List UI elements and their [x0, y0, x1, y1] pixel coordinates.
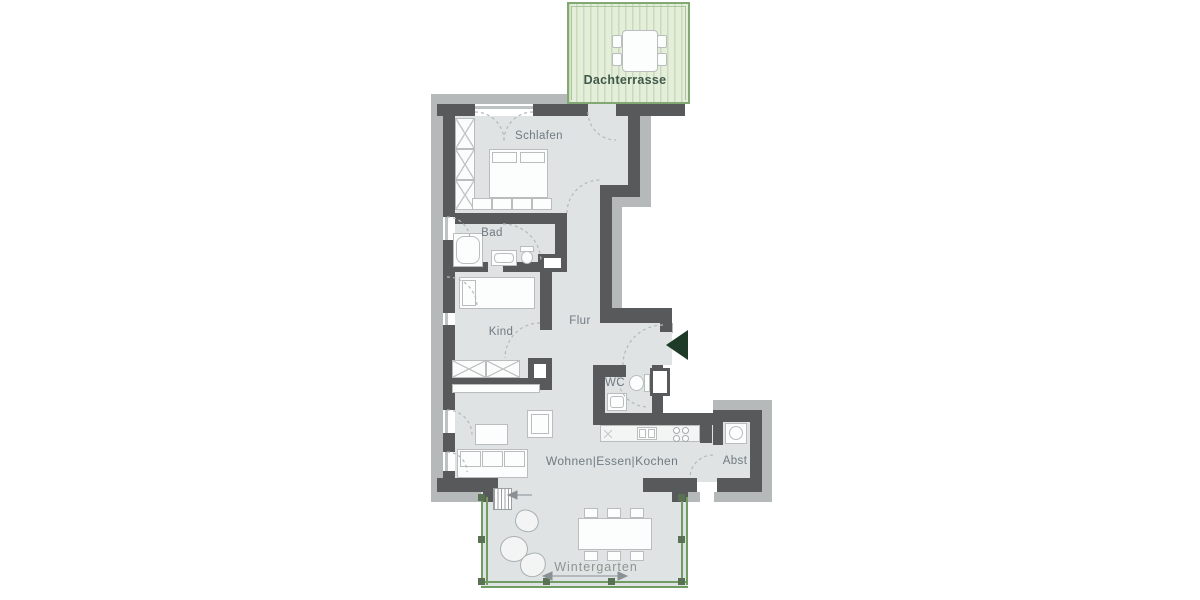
window-swing-arc [447, 410, 472, 435]
room-label-dachterrasse: Dachterrasse [584, 73, 667, 87]
schlafen-door-swing-arc [567, 180, 600, 213]
door-swing-arcs-overlay [0, 0, 1200, 600]
entrance-door-swing-arc [623, 325, 663, 365]
floor-plan: Dachterrasse Schlafen Bad Kind Flur WC W… [0, 0, 1200, 600]
bad-door-swing-arc [503, 224, 541, 262]
room-label-kind: Kind [489, 326, 514, 338]
room-label-abst: Abst [723, 455, 748, 467]
window-swing-arc [447, 217, 470, 240]
terrace-door-swing-arc [588, 112, 616, 140]
room-label-schlafen: Schlafen [515, 130, 563, 142]
window-swing-arc [447, 277, 477, 307]
room-label-wohnen-essen-kochen: Wohnen|Essen|Kochen [546, 454, 678, 468]
room-label-wintergarten: Wintergarten [554, 560, 638, 574]
entrance-arrow [666, 330, 688, 360]
room-label-bad: Bad [481, 227, 503, 239]
window-swing-arc [447, 452, 467, 472]
abst-door-swing-arc [690, 455, 713, 478]
window-swing-arc [475, 112, 504, 141]
room-label-flur: Flur [569, 315, 590, 327]
room-label-wc: WC [605, 377, 625, 389]
